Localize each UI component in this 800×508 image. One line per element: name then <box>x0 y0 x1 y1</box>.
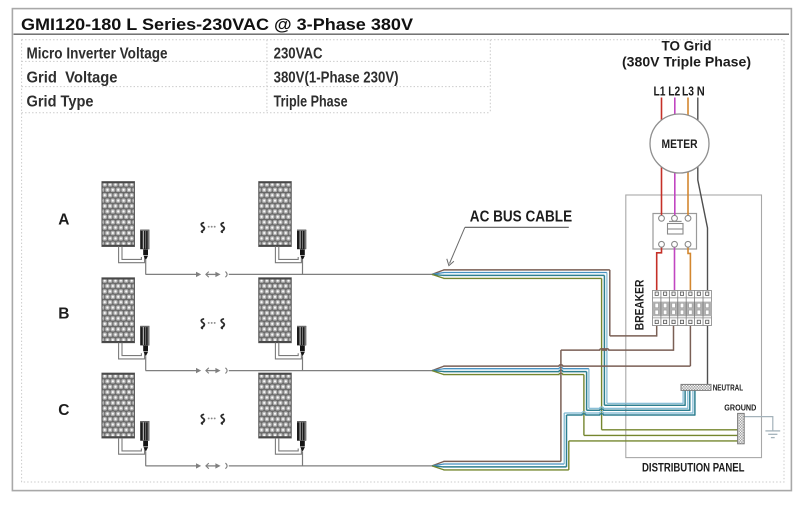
svg-text:NEUTRAL: NEUTRAL <box>713 382 744 392</box>
svg-text:380V(1-Phase 230V): 380V(1-Phase 230V) <box>274 69 399 86</box>
svg-text:N: N <box>697 85 705 99</box>
svg-text:GMI120-180 L Series-230VAC @ 3: GMI120-180 L Series-230VAC @ 3-Phase 380… <box>21 15 414 34</box>
svg-text:Grid Voltage: Grid Voltage <box>27 69 118 86</box>
svg-text:L2: L2 <box>668 85 680 99</box>
svg-text:(380V Triple Phase): (380V Triple Phase) <box>622 55 751 70</box>
svg-text:DISTRIBUTION PANEL: DISTRIBUTION PANEL <box>642 460 745 474</box>
svg-text:AC BUS CABLE: AC BUS CABLE <box>470 209 572 226</box>
svg-text:L3: L3 <box>682 85 694 99</box>
svg-text:BREAKER: BREAKER <box>633 279 647 330</box>
svg-text:Micro Inverter Voltage: Micro Inverter Voltage <box>27 46 168 63</box>
svg-text:C: C <box>58 402 69 419</box>
svg-text:METER: METER <box>662 139 699 151</box>
svg-text:Triple Phase: Triple Phase <box>274 93 348 110</box>
svg-text:GROUND: GROUND <box>724 403 756 413</box>
svg-text:Grid Type: Grid Type <box>27 93 94 110</box>
svg-text:L1: L1 <box>654 85 666 99</box>
svg-text:230VAC: 230VAC <box>274 46 323 63</box>
svg-text:A: A <box>58 211 69 228</box>
svg-text:TO Grid: TO Grid <box>662 39 712 54</box>
svg-text:B: B <box>58 306 69 323</box>
